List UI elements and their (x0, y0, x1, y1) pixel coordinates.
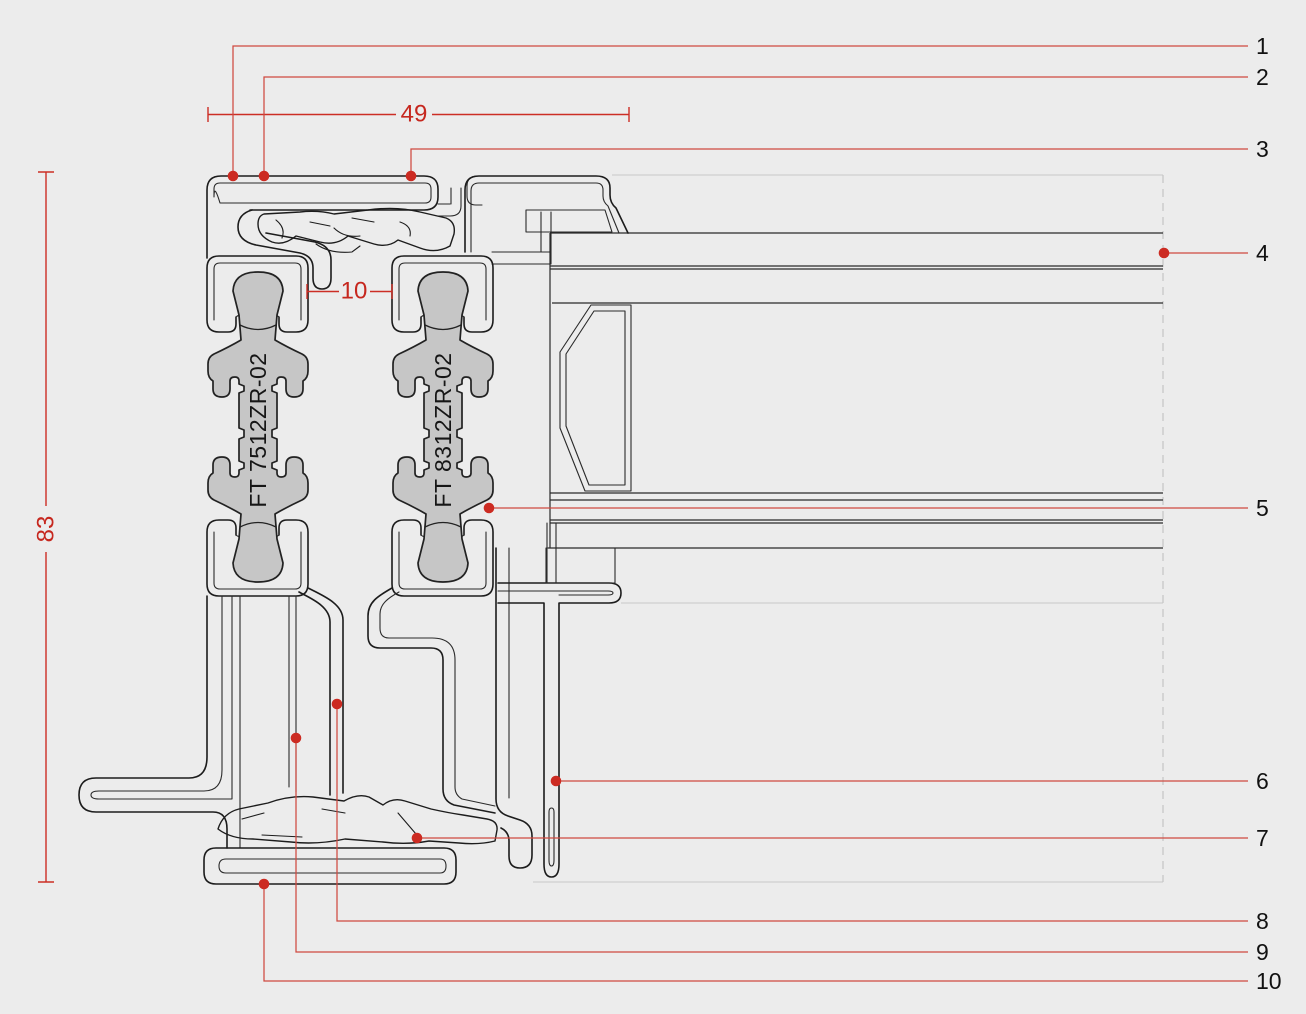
callout-dot-4 (1159, 248, 1170, 259)
callout-labels: 1 2 3 4 5 6 7 8 9 10 (1256, 33, 1282, 994)
sash-bottom-j-hook (496, 548, 532, 868)
callout-label-8: 8 (1256, 908, 1269, 934)
sash-top-bar-outer (465, 176, 628, 252)
callout-leaders (228, 46, 1248, 981)
bead-pocket-outer (560, 305, 631, 491)
callout-dot-10 (259, 879, 270, 890)
glazing-block-top (526, 210, 612, 232)
callout-label-4: 4 (1256, 240, 1269, 266)
leader-9 (296, 738, 1248, 952)
frame-interlock-fin (438, 188, 461, 216)
callout-label-1: 1 (1256, 33, 1269, 59)
technical-drawing-canvas: FT 7512ZR-02 FT 8312ZR-02 49 10 83 (0, 0, 1306, 1014)
leader-8 (337, 704, 1248, 921)
callout-label-10: 10 (1256, 968, 1282, 994)
callout-dot-6 (551, 776, 562, 787)
glass-panel (533, 175, 1163, 882)
top-gasket-detail (276, 218, 410, 238)
callout-dot-5 (484, 503, 495, 514)
callout-label-6: 6 (1256, 768, 1269, 794)
sash-bottom-interlock (498, 583, 621, 877)
callout-dot-1 (228, 171, 239, 182)
dimension-width-value: 49 (401, 101, 428, 128)
callout-label-7: 7 (1256, 825, 1269, 851)
frame-top-bar-slot (214, 183, 431, 203)
leader-3 (411, 149, 1248, 176)
sash-top-bar-inner (471, 183, 619, 252)
dimension-height-value: 83 (33, 516, 60, 543)
frame-base-plate (204, 848, 456, 884)
callout-label-9: 9 (1256, 939, 1269, 965)
thermal-breaks: FT 7512ZR-02 FT 8312ZR-02 (208, 272, 493, 582)
top-gasket-body (258, 208, 454, 250)
callout-label-5: 5 (1256, 495, 1269, 521)
sash-bottom (368, 523, 621, 877)
sash-stile (550, 233, 631, 548)
callout-label-2: 2 (1256, 64, 1269, 90)
dimension-gap-10: 10 (307, 278, 392, 305)
profile-label-left: FT 7512ZR-02 (245, 352, 271, 507)
section-drawing: FT 7512ZR-02 FT 8312ZR-02 49 10 83 (0, 0, 1306, 1014)
leader-1 (233, 46, 1248, 176)
callout-dot-8 (332, 699, 343, 710)
bottom-gasket-body (218, 796, 497, 844)
sash-antilift-hook (467, 176, 482, 205)
callout-dot-2 (259, 171, 270, 182)
glazing-lines (548, 233, 1163, 548)
dimension-gap-value: 10 (341, 278, 368, 305)
callout-dot-9 (291, 733, 302, 744)
dimension-width-49: 49 (208, 101, 629, 128)
sash-shelf (492, 212, 551, 264)
leader-10 (264, 884, 1248, 981)
bottom-gasket-detail (242, 809, 416, 837)
bead-pocket-inner (566, 311, 625, 485)
callout-dot-7 (412, 833, 423, 844)
callout-dot-3 (406, 171, 417, 182)
dimension-height-83: 83 (33, 172, 60, 882)
callout-label-3: 3 (1256, 136, 1269, 162)
profile-label-right: FT 8312ZR-02 (430, 352, 456, 507)
